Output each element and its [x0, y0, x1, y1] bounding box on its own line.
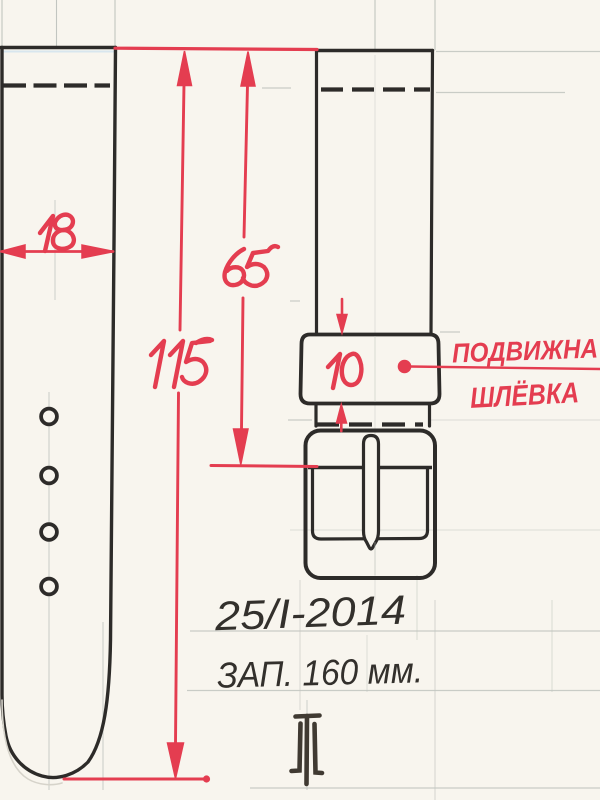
svg-text:ШЛЁВКА: ШЛЁВКА	[469, 376, 580, 415]
svg-text:ПОДВИЖНА: ПОДВИЖНА	[452, 333, 599, 368]
svg-text:ЗАП. 160 мм.: ЗАП. 160 мм.	[217, 649, 424, 695]
svg-text:25/I-2014: 25/I-2014	[213, 587, 407, 640]
